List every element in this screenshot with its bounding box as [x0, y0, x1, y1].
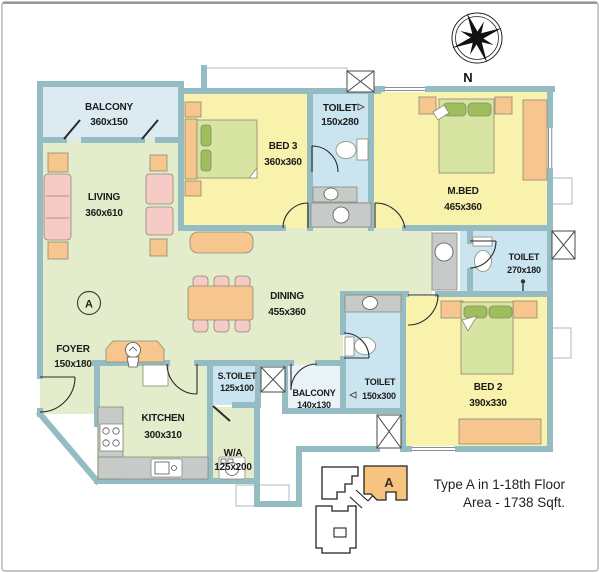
keyplan-unit-label: A [384, 475, 394, 490]
room-label-living: LIVING [88, 192, 121, 203]
room-dims-bed3: 360x360 [264, 157, 302, 168]
tv-console [190, 232, 253, 253]
wc-icon [357, 139, 368, 160]
room-label-toilet-bottom: TOILET [365, 377, 396, 387]
room-label-mbed: M.BED [447, 186, 478, 197]
washbasin-icon [333, 207, 349, 223]
wc-icon [336, 142, 356, 159]
living-sofa [44, 153, 71, 259]
ledge-right-step [550, 178, 572, 204]
terrace-ledge-top [205, 68, 347, 91]
floor-plan-page: BALCONY 360x150 LIVING 360x610 BED 3 360… [0, 0, 600, 573]
room-label-kitchen: KITCHEN [141, 413, 184, 424]
room-label-balcony-bottom: BALCONY [292, 388, 335, 398]
mbed-wardrobe [523, 100, 547, 180]
room-dims-foyer: 150x180 [54, 359, 92, 370]
bed2-wardrobe [459, 419, 541, 444]
wc-icon [475, 251, 492, 272]
room-label-toilet-right: TOILET [509, 252, 540, 262]
window-mbed-right [547, 128, 554, 168]
compass-north-label: N [463, 70, 472, 85]
balcony-top-floor [40, 86, 181, 142]
shaft-icon [377, 415, 401, 448]
room-dims-wa: 125x200 [214, 462, 252, 473]
wc-icon [355, 338, 376, 355]
room-dims-balcony-top: 360x150 [90, 117, 128, 128]
keyplan-block-lower [316, 506, 356, 553]
room-dims-bed2: 390x330 [469, 398, 507, 409]
window-bed2-bottom [412, 446, 455, 452]
floor-plan-drawing: BALCONY 360x150 LIVING 360x610 BED 3 360… [0, 0, 600, 573]
caption-line2: Area - 1738 Sqft. [463, 495, 565, 510]
sink-icon [151, 459, 182, 477]
room-label-bed2: BED 2 [474, 382, 503, 393]
washbasin-icon [435, 243, 453, 261]
room-label-dining: DINING [270, 291, 304, 302]
room-label-balcony-top: BALCONY [85, 102, 134, 113]
wc-icon [345, 337, 354, 356]
room-dims-dining: 455x360 [268, 307, 306, 318]
shaft-icon [552, 231, 575, 259]
washbasin-icon [324, 188, 338, 200]
room-dims-s-toilet: 125x100 [220, 383, 254, 393]
room-dims-balcony-bottom: 140x130 [297, 400, 331, 410]
room-dims-kitchen: 300x310 [144, 430, 182, 441]
room-label-foyer: FOYER [56, 344, 90, 355]
stove-icon [100, 424, 123, 451]
window-mbed-top [385, 86, 425, 92]
room-dims-toilet-right: 270x180 [507, 265, 541, 275]
room-dims-toilet-bottom: 150x300 [362, 391, 396, 401]
room-label-toilet-top: TOILET [323, 103, 357, 114]
washbasin-icon [363, 297, 378, 310]
room-dims-mbed: 465x360 [444, 202, 482, 213]
fridge-icon [143, 365, 168, 386]
caption-line1: Type A in 1-18th Floor [434, 477, 566, 492]
room-label-bed3: BED 3 [269, 141, 298, 152]
room-label-wa: W/A [224, 448, 243, 459]
section-marker-label: A [85, 299, 93, 311]
shaft-icon [261, 367, 285, 392]
room-dims-toilet-top: 150x280 [321, 117, 359, 128]
room-label-s-toilet: S.TOILET [218, 371, 257, 381]
shaft-icon [347, 71, 374, 92]
dining-table-set [188, 276, 253, 332]
bed2-niche [550, 328, 571, 358]
room-dims-living: 360x610 [85, 208, 123, 219]
